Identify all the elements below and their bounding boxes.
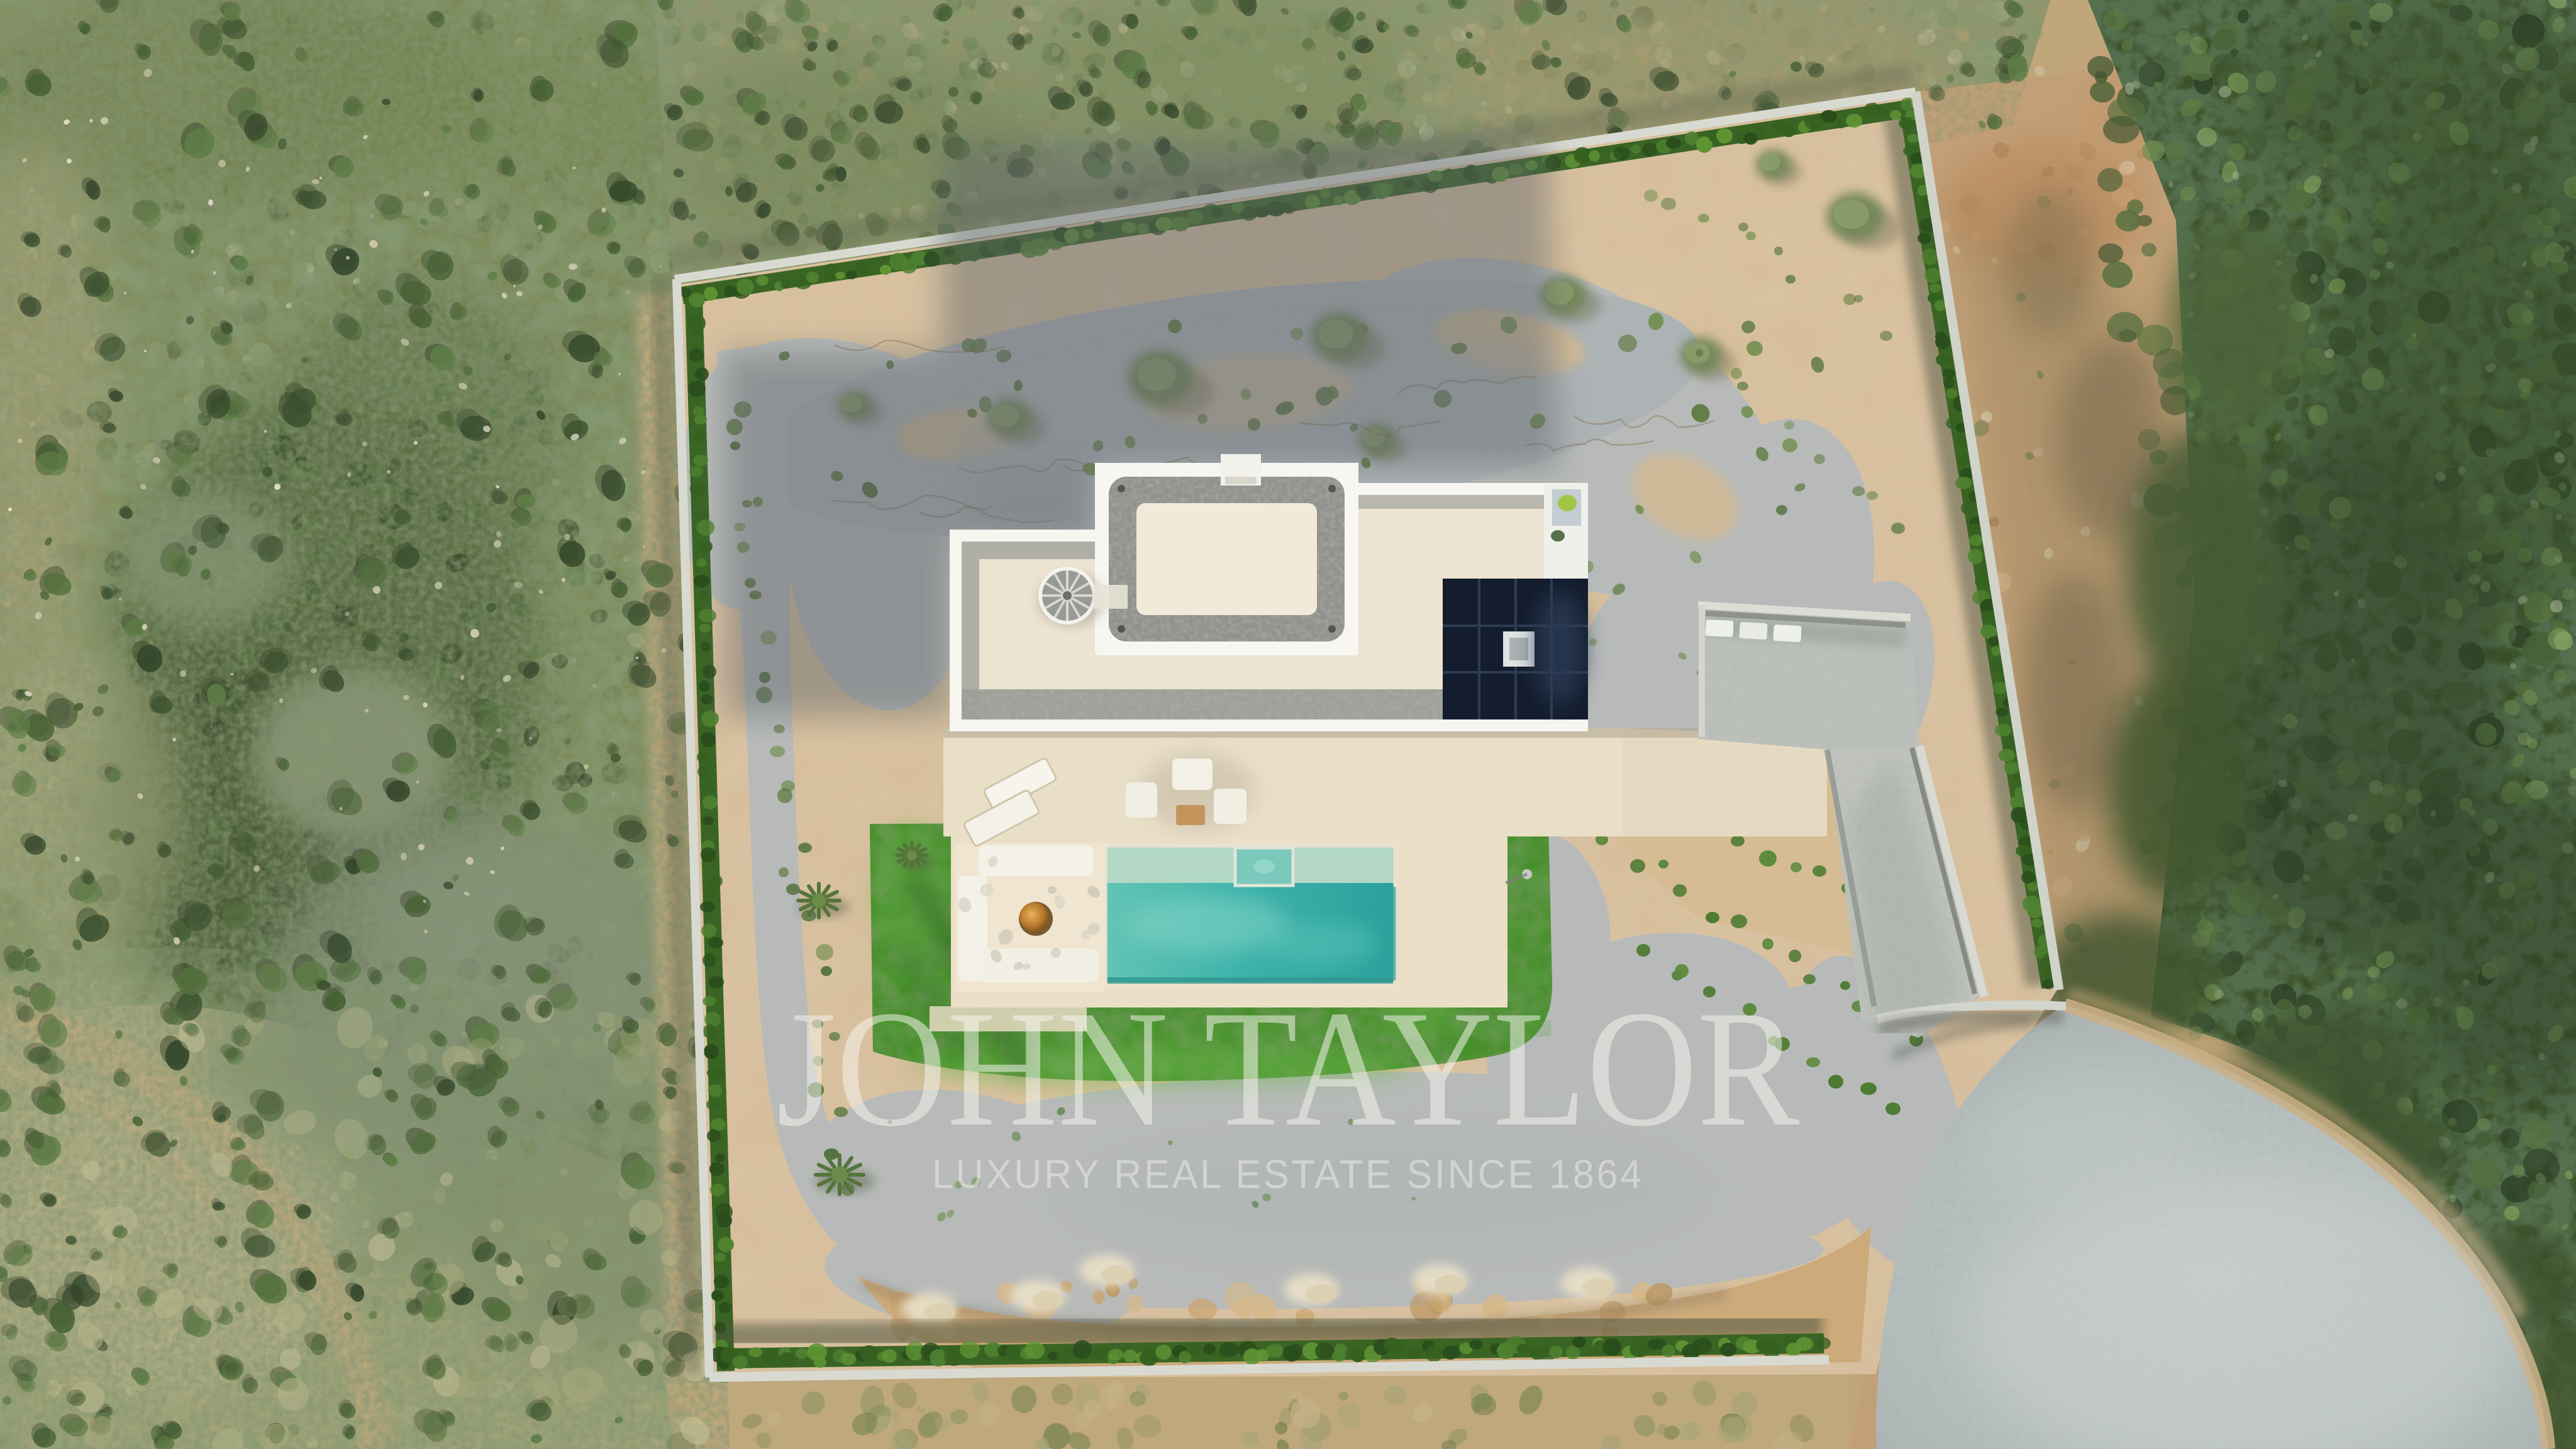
svg-text:JOHN TAYLOR: JOHN TAYLOR	[777, 977, 1801, 1161]
svg-text:LUXURY REAL ESTATE SINCE 1864: LUXURY REAL ESTATE SINCE 1864	[932, 1152, 1644, 1197]
